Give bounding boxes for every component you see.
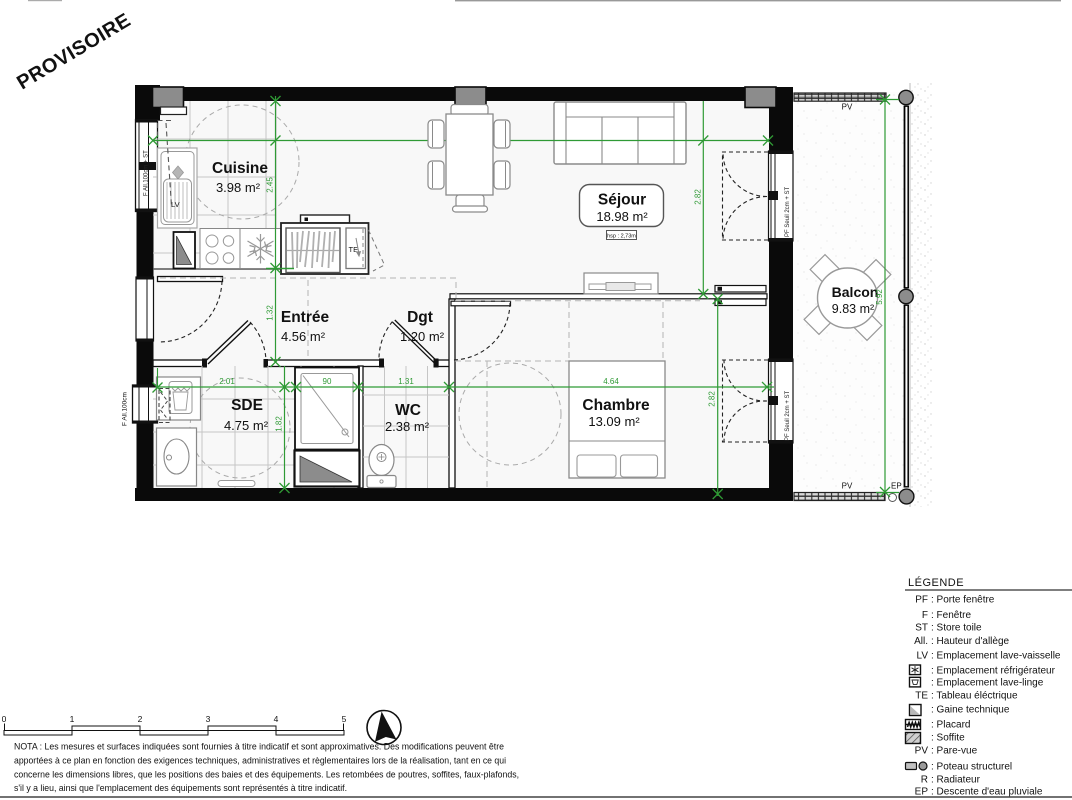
svg-text:PV: PV [842, 482, 853, 491]
svg-text:: Store toile: : Store toile [931, 623, 982, 634]
svg-text:: Poteau structurel: : Poteau structurel [931, 762, 1012, 773]
svg-text:13.09 m²: 13.09 m² [588, 414, 640, 429]
svg-text:Cuisine: Cuisine [212, 160, 268, 177]
svg-text:3.98 m²: 3.98 m² [216, 180, 261, 195]
svg-text:: Emplacement lave-vaisselle: : Emplacement lave-vaisselle [931, 651, 1061, 662]
svg-text:LV: LV [171, 200, 180, 209]
svg-text:2.01: 2.01 [219, 377, 235, 386]
svg-text:4.56 m²: 4.56 m² [281, 329, 326, 344]
svg-text:4.75 m²: 4.75 m² [224, 418, 269, 433]
svg-text:1.31: 1.31 [398, 377, 414, 386]
svg-text:ST: ST [915, 623, 928, 634]
svg-text:hsp : 2,73m: hsp : 2,73m [607, 233, 636, 239]
svg-text:2.82: 2.82 [693, 189, 702, 205]
svg-text:PF Seuil 2cm + ST: PF Seuil 2cm + ST [785, 390, 791, 441]
svg-text:1: 1 [70, 714, 75, 724]
svg-text:3: 3 [206, 714, 211, 724]
svg-text:EP: EP [915, 787, 929, 798]
svg-text:: Porte fenêtre: : Porte fenêtre [931, 595, 995, 606]
svg-text:LÉGENDE: LÉGENDE [908, 576, 964, 589]
svg-text:9.83 m²: 9.83 m² [832, 302, 874, 316]
svg-text:2.45: 2.45 [266, 177, 275, 193]
svg-text:: Emplacement lave-linge: : Emplacement lave-linge [931, 678, 1044, 689]
svg-text:F All.100cm + ST: F All.100cm + ST [144, 150, 150, 196]
svg-text:2.38 m²: 2.38 m² [385, 419, 430, 434]
svg-text:18.98 m²: 18.98 m² [596, 209, 648, 224]
svg-text:R: R [921, 775, 928, 786]
svg-text:: Hauteur d'allège: : Hauteur d'allège [931, 636, 1010, 647]
svg-text:0: 0 [2, 714, 7, 724]
svg-text:apportées à ce plan en fonctio: apportées à ce plan en fonction des exig… [14, 756, 506, 766]
svg-text:PF Seuil 2cm + ST: PF Seuil 2cm + ST [785, 186, 791, 237]
svg-text:s'il y a lieu, ainsi que l'emp: s'il y a lieu, ainsi que l'emplacement d… [14, 783, 347, 793]
svg-text:1.20 m²: 1.20 m² [400, 329, 445, 344]
svg-text:: Tableau éléctrique: : Tableau éléctrique [931, 691, 1018, 702]
svg-text:1.82: 1.82 [275, 416, 284, 432]
svg-text:WC: WC [395, 402, 421, 419]
svg-text:5.92: 5.92 [875, 289, 884, 305]
svg-text:Balcon: Balcon [832, 284, 879, 300]
svg-text:2: 2 [138, 714, 143, 724]
svg-text:: Radiateur: : Radiateur [931, 775, 981, 786]
svg-text:4: 4 [274, 714, 279, 724]
svg-text:: Placard: : Placard [931, 720, 970, 731]
svg-text:PV: PV [842, 103, 853, 112]
svg-text:Chambre: Chambre [582, 397, 650, 414]
svg-text:Séjour: Séjour [598, 192, 646, 209]
svg-text:concerne les dimensions libres: concerne les dimensions libres, que les … [14, 770, 519, 780]
svg-text:TE: TE [915, 691, 928, 702]
svg-text:: Emplacement réfrigérateur: : Emplacement réfrigérateur [931, 666, 1056, 677]
svg-text:4.64: 4.64 [603, 377, 619, 386]
svg-text:2.82: 2.82 [708, 391, 717, 407]
svg-text:EP: EP [891, 482, 902, 491]
svg-text:All.: All. [914, 636, 928, 647]
svg-text:: Descente d'eau pluviale: : Descente d'eau pluviale [931, 787, 1043, 798]
svg-text:F All.100cm: F All.100cm [122, 392, 129, 426]
svg-text:NOTA : Les mesures et surfaces: NOTA : Les mesures et surfaces indiquées… [14, 742, 504, 752]
svg-text:5: 5 [342, 714, 347, 724]
svg-text:F: F [922, 610, 928, 621]
svg-text:1.32: 1.32 [266, 305, 275, 321]
svg-text:: Fenêtre: : Fenêtre [931, 610, 971, 621]
svg-text:PF: PF [915, 595, 928, 606]
svg-text:LV: LV [917, 651, 929, 662]
svg-text:PV: PV [915, 746, 929, 757]
svg-text:SDE: SDE [231, 397, 263, 414]
svg-text:: Gaine technique: : Gaine technique [931, 705, 1010, 716]
svg-text:Dgt: Dgt [407, 309, 433, 326]
svg-text:: Pare-vue: : Pare-vue [931, 746, 978, 757]
svg-text:90: 90 [323, 377, 332, 386]
svg-text:Entrée: Entrée [281, 309, 330, 326]
svg-text:: Soffite: : Soffite [931, 733, 965, 744]
